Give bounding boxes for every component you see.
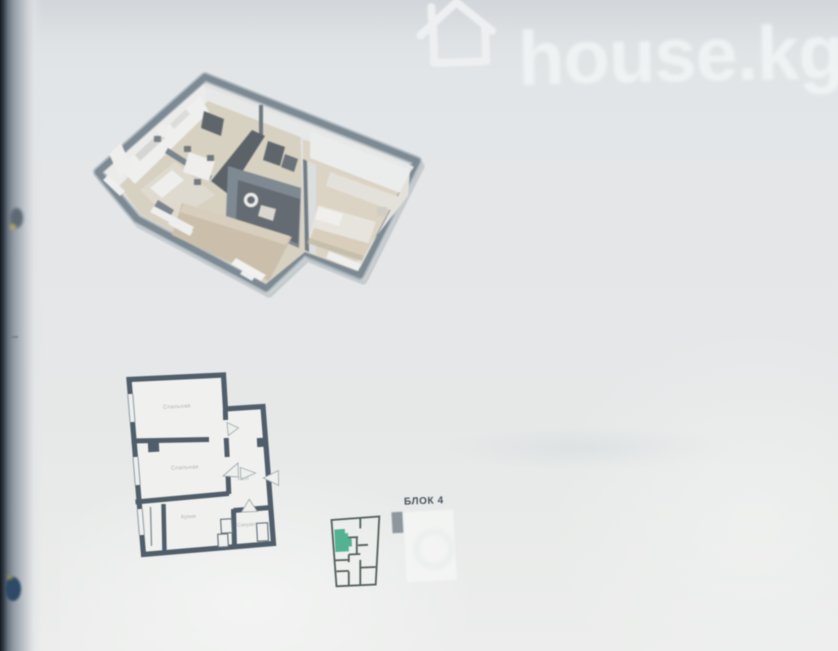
svg-text:Кухня: Кухня <box>181 514 196 521</box>
svg-text:Санузел: Санузел <box>237 522 257 529</box>
svg-text:Холл: Холл <box>237 476 249 483</box>
